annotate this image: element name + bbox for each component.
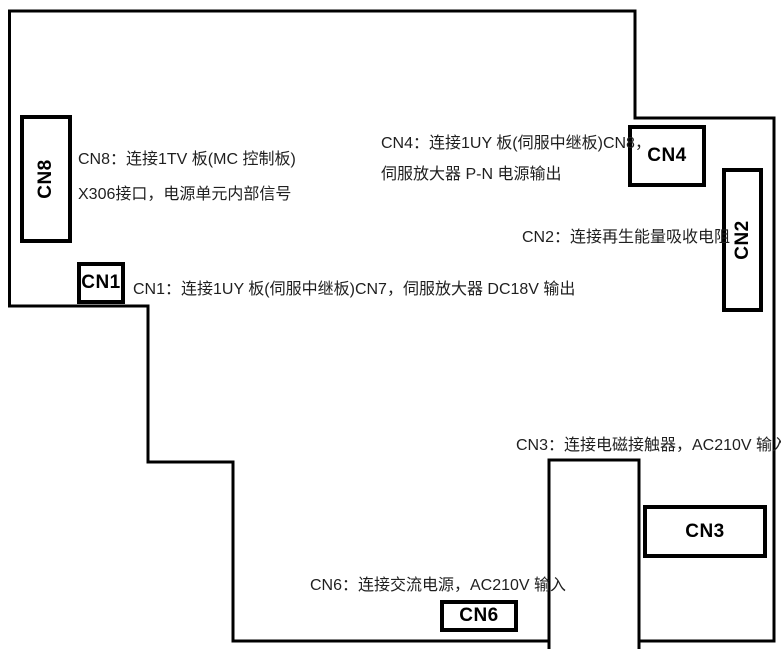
connector-label-cn6: CN6: [459, 605, 499, 627]
connector-box-cn8: CN8: [20, 115, 72, 243]
annotation-cn4-line1: CN4：连接1UY 板(伺服中继板)CN8，: [381, 135, 651, 153]
annotation-cn4-line2: 伺服放大器 P-N 电源输出: [381, 166, 561, 184]
connector-label-cn8: CN8: [35, 159, 57, 199]
board-diagram: CN8 CN1 CN4 CN2 CN3 CN6 CN8：连接1TV 板(MC 控…: [0, 0, 781, 651]
bottom-slot-stubs: [549, 641, 639, 649]
connector-label-cn3: CN3: [685, 521, 725, 543]
connector-box-cn1: CN1: [77, 262, 125, 304]
connector-box-cn6: CN6: [440, 600, 518, 632]
connector-box-cn3: CN3: [643, 505, 767, 558]
annotation-cn6: CN6：连接交流电源，AC210V 输入: [310, 577, 566, 595]
annotation-cn2: CN2：连接再生能量吸收电阻: [522, 229, 730, 247]
connector-label-cn4: CN4: [647, 145, 687, 167]
connector-label-cn1: CN1: [81, 272, 121, 294]
connector-label-cn2: CN2: [732, 220, 754, 260]
annotation-cn1: CN1：连接1UY 板(伺服中继板)CN7，伺服放大器 DC18V 输出: [133, 281, 575, 299]
annotation-cn8-line2: X306接口，电源单元内部信号: [78, 186, 291, 204]
annotation-cn8-line1: CN8：连接1TV 板(MC 控制板): [78, 151, 296, 169]
annotation-cn3: CN3：连接电磁接触器，AC210V 输入: [516, 437, 781, 455]
